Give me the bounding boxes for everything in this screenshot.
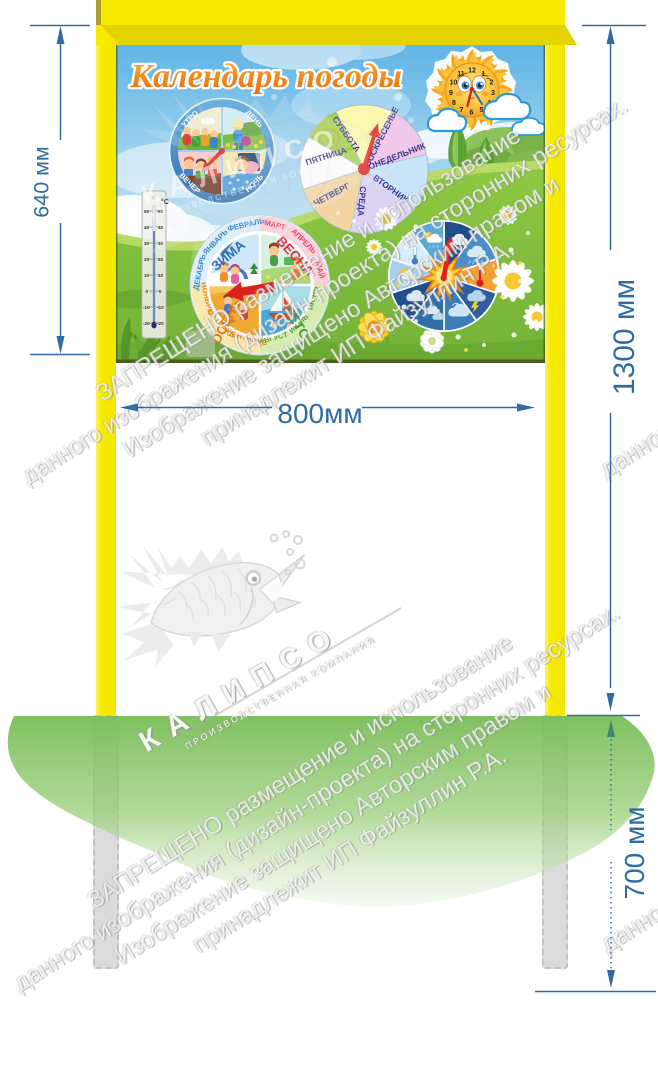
svg-text:640 мм: 640 мм: [30, 146, 54, 217]
svg-text:700 мм: 700 мм: [619, 807, 650, 900]
svg-text:1300 мм: 1300 мм: [608, 279, 641, 395]
svg-text:800мм: 800мм: [277, 398, 362, 429]
